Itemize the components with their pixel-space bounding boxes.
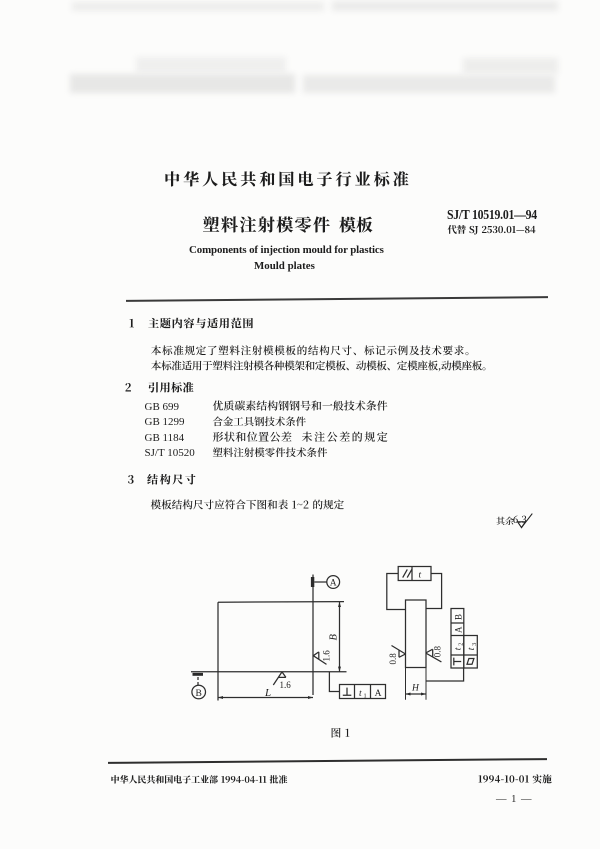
svg-text:t: t <box>359 689 362 699</box>
svg-text:3: 3 <box>471 643 478 646</box>
svg-text:A: A <box>454 626 464 633</box>
svg-text:0.8: 0.8 <box>433 645 443 657</box>
svg-text:B: B <box>454 614 464 620</box>
svg-text:t: t <box>419 570 422 580</box>
svg-text:t: t <box>467 647 477 650</box>
svg-text:B: B <box>196 689 202 699</box>
svg-text:B: B <box>329 634 340 641</box>
svg-text:1.6: 1.6 <box>280 680 292 690</box>
svg-text:H: H <box>411 684 420 694</box>
svg-text:L: L <box>264 687 271 699</box>
svg-text:A: A <box>330 579 337 589</box>
svg-text:t: t <box>454 647 464 650</box>
svg-text:1: 1 <box>364 693 367 700</box>
svg-text:1.6: 1.6 <box>322 650 332 662</box>
svg-text:2: 2 <box>458 643 465 646</box>
svg-text:A: A <box>375 689 382 699</box>
svg-text:0.8: 0.8 <box>388 653 398 665</box>
